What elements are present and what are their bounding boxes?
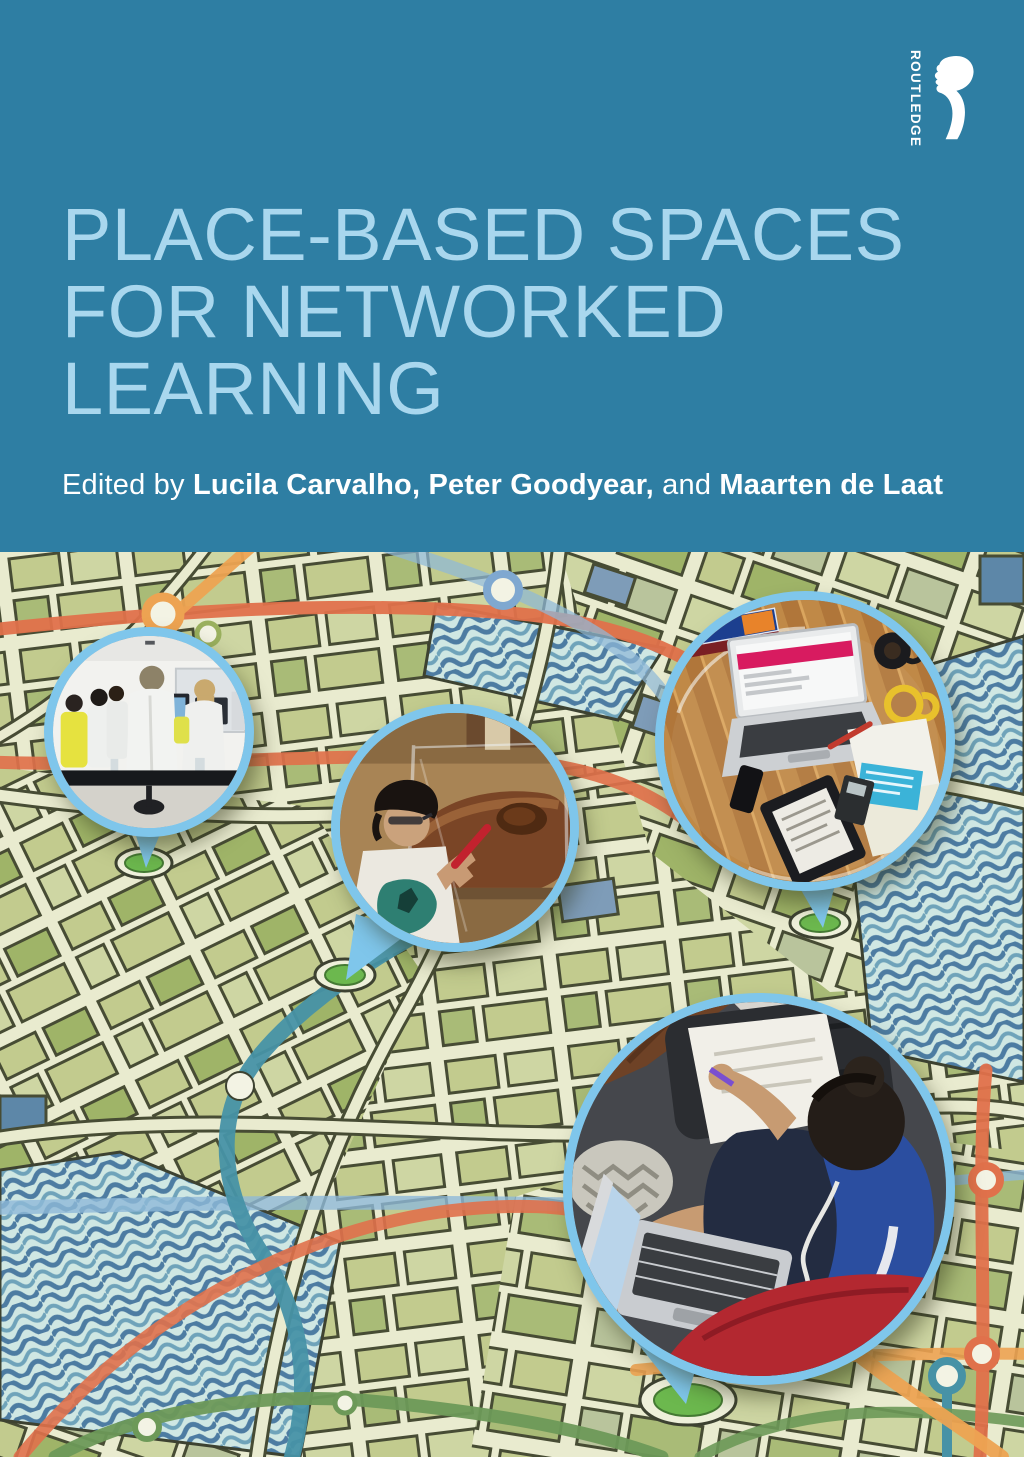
editor-name-1: Lucila Carvalho, bbox=[193, 469, 428, 501]
lab-photo-illustration bbox=[53, 636, 245, 828]
photo-circle-lab bbox=[44, 627, 254, 837]
book-cover: ROUTLEDGE PLACE-BASED SPACES FOR NETWORK… bbox=[0, 0, 1024, 1457]
photo-circle-couch bbox=[563, 993, 955, 1385]
editors-byline: Edited by Lucila Carvalho, Peter Goodyea… bbox=[62, 469, 943, 502]
editor-name-3: Maarten de Laat bbox=[719, 469, 943, 501]
book-title: PLACE-BASED SPACES FOR NETWORKED LEARNIN… bbox=[62, 196, 904, 427]
title-line-1: PLACE-BASED SPACES bbox=[62, 196, 904, 273]
title-band: ROUTLEDGE PLACE-BASED SPACES FOR NETWORK… bbox=[0, 0, 1024, 552]
couch-photo-illustration bbox=[572, 1002, 946, 1376]
title-line-2: FOR NETWORKED bbox=[62, 273, 904, 350]
museum-photo-illustration bbox=[340, 713, 570, 943]
byline-conjunction: and bbox=[662, 469, 719, 501]
routledge-r-icon bbox=[924, 50, 978, 144]
editor-name-2: Peter Goodyear, bbox=[428, 469, 662, 501]
byline-prefix: Edited by bbox=[62, 469, 193, 501]
photo-circle-museum bbox=[331, 704, 579, 952]
publisher-wordmark: ROUTLEDGE bbox=[908, 50, 923, 154]
desk-photo-illustration bbox=[664, 600, 946, 882]
publisher-logo: ROUTLEDGE bbox=[908, 50, 978, 154]
photo-circle-desk bbox=[655, 591, 955, 891]
title-line-3: LEARNING bbox=[62, 350, 904, 427]
